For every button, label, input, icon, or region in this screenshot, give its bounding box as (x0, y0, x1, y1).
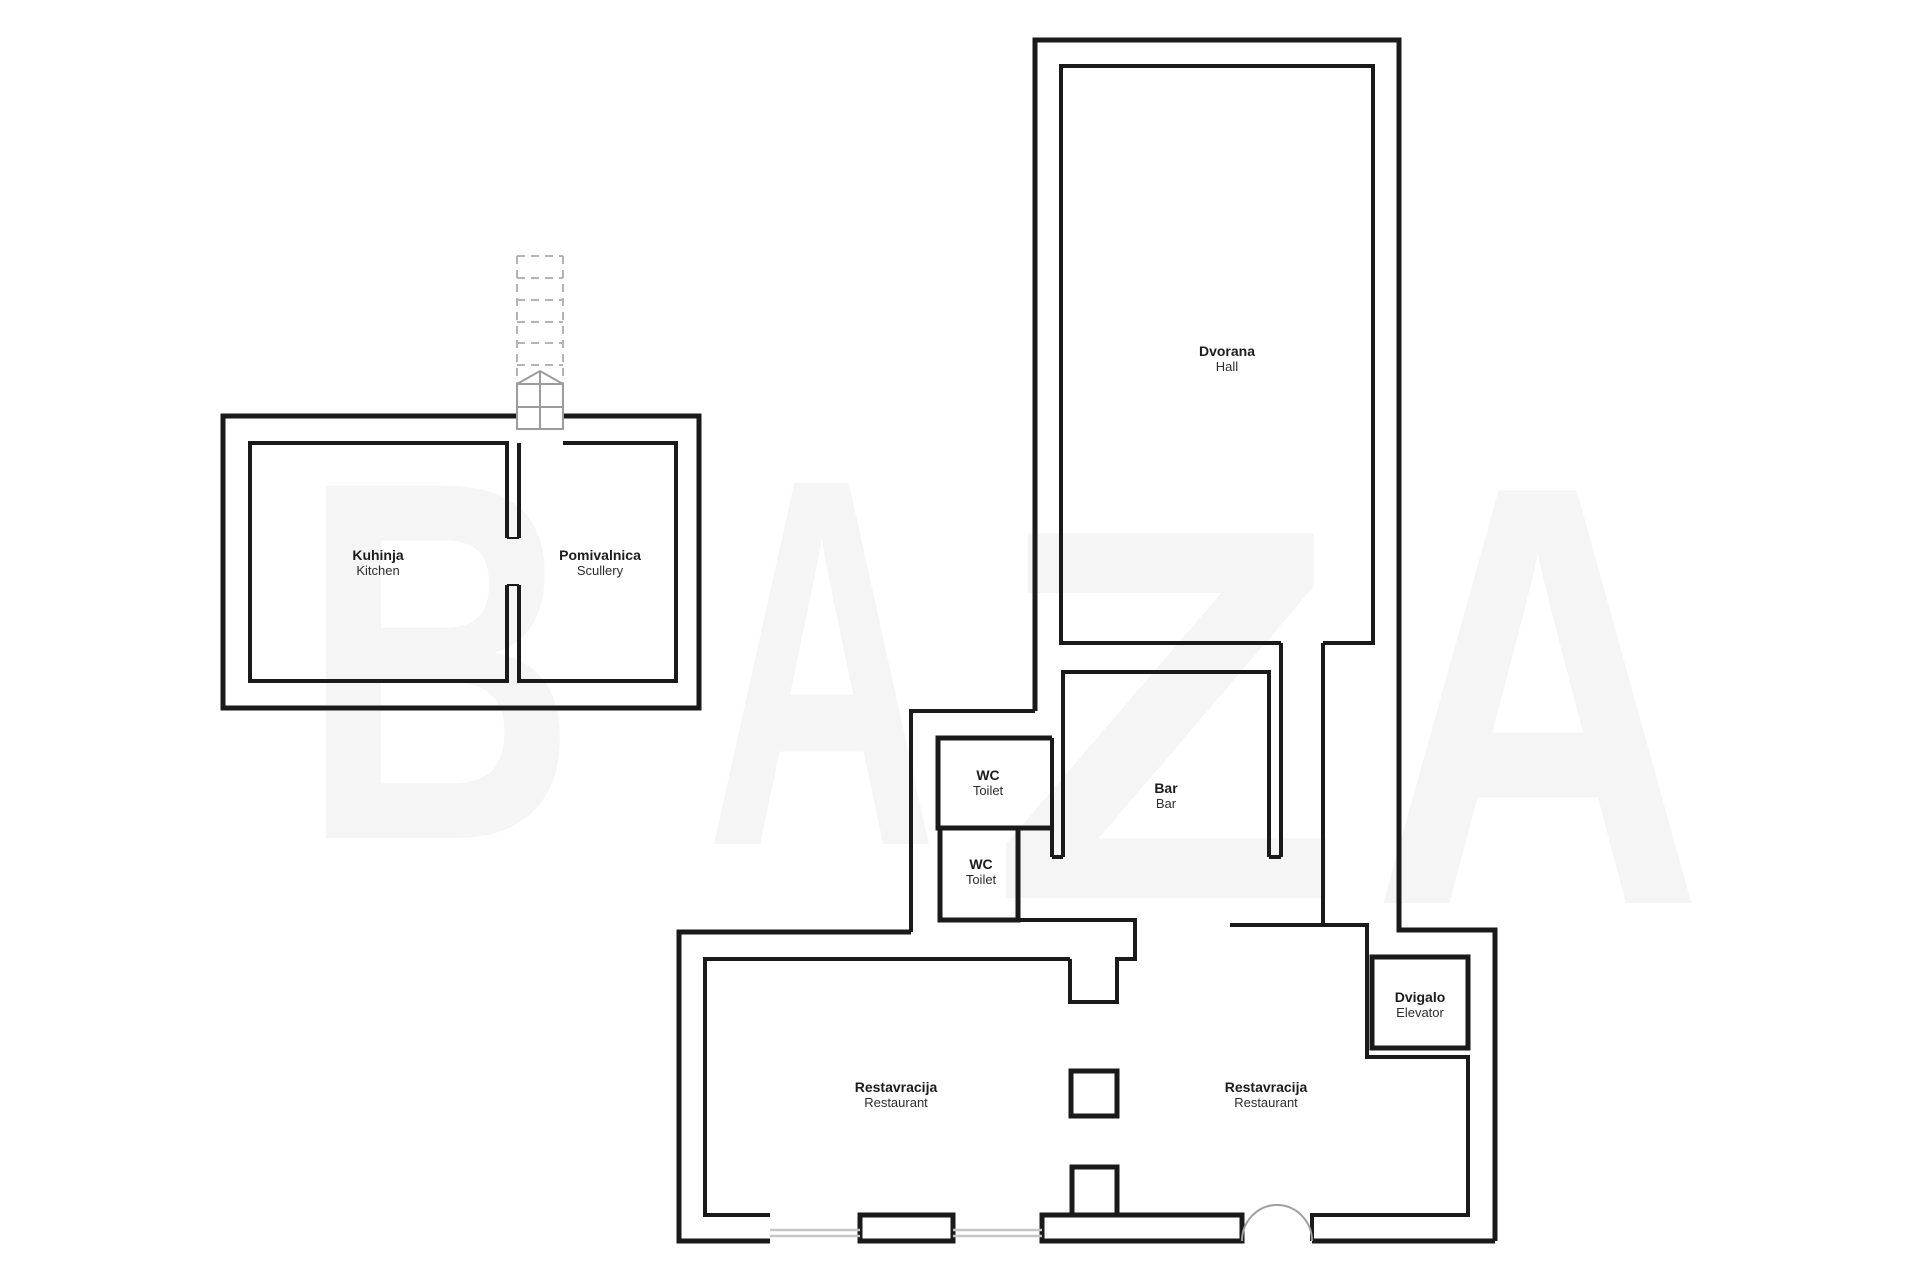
room-name-en: Bar (1154, 796, 1177, 812)
bar-room (1063, 643, 1323, 925)
kitchen-door-jambs (507, 538, 519, 585)
door-swing-arcs (1242, 1205, 1312, 1241)
room-label-elevator: Dvigalo Elevator (1395, 989, 1446, 1021)
room-label-hall: Dvorana Hall (1199, 343, 1255, 375)
room-name-en: Kitchen (352, 563, 403, 579)
room-label-bar: Bar Bar (1154, 780, 1177, 812)
room-label-kitchen: Kuhinja Kitchen (352, 547, 403, 579)
room-name: Dvorana (1199, 343, 1255, 359)
entrance-door (1242, 1205, 1312, 1241)
room-name-en: Toilet (973, 783, 1003, 799)
room-name-en: Scullery (559, 563, 641, 579)
room-name: Dvigalo (1395, 989, 1446, 1005)
room-name-en: Hall (1199, 359, 1255, 375)
pillar (1071, 1071, 1117, 1116)
room-label-scullery: Pomivalnica Scullery (559, 547, 641, 579)
bottom-pier (1072, 1167, 1117, 1215)
floorplan-page: B A Z A (0, 0, 1920, 1280)
room-name: WC (966, 856, 996, 872)
room-name-en: Restaurant (855, 1095, 938, 1111)
room-label-wc-lower: WC Toilet (966, 856, 996, 888)
hall-block (1035, 40, 1495, 1241)
stair-upper-flight-dashed (517, 256, 563, 384)
bar-walls (1063, 643, 1281, 857)
room-name: Bar (1154, 780, 1177, 796)
hall-outer-wall (1035, 40, 1495, 1241)
bottom-wall-block (860, 1215, 953, 1241)
room-name-en: Toilet (966, 872, 996, 888)
restaurant-left-room (679, 920, 1242, 1241)
window (770, 1230, 1042, 1236)
bottom-wall-block (1042, 1215, 1242, 1241)
floorplan-drawing (0, 0, 1920, 1280)
staircase (517, 256, 563, 430)
room-label-restaurant-right: Restavracija Restaurant (1225, 1079, 1308, 1111)
room-name-en: Elevator (1395, 1005, 1446, 1021)
room-name: WC (973, 767, 1003, 783)
room-name: Pomivalnica (559, 547, 641, 563)
room-name-en: Restaurant (1225, 1095, 1308, 1111)
room-name: Restavracija (1225, 1079, 1308, 1095)
room-name: Restavracija (855, 1079, 938, 1095)
room-label-restaurant-left: Restavracija Restaurant (855, 1079, 938, 1111)
room-name: Kuhinja (352, 547, 403, 563)
wc-block (911, 711, 1063, 932)
room-label-wc-upper: WC Toilet (973, 767, 1003, 799)
